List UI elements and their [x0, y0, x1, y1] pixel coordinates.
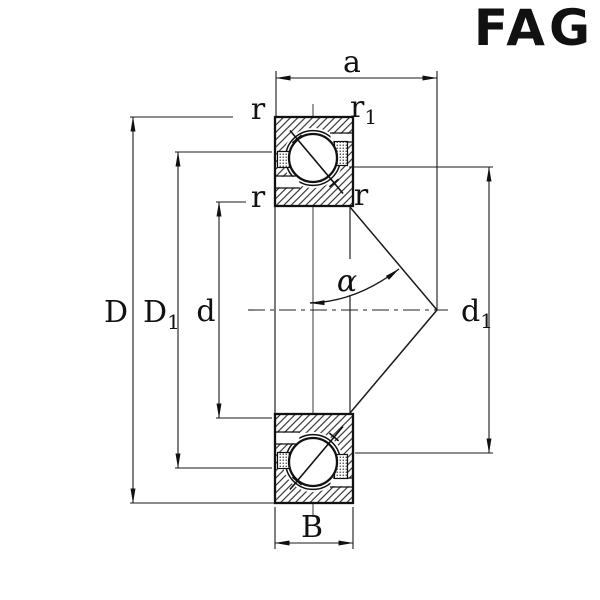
r-label-mid-right: r	[354, 178, 369, 213]
dim-D-label: D	[104, 295, 128, 330]
contact-line-top-to-apex	[350, 207, 437, 310]
top-left-gap	[276, 177, 300, 188]
bearing-technical-drawing: α a D D1 d d1	[0, 0, 600, 600]
contact-line-bottom-to-apex	[350, 310, 437, 413]
top-right-gap	[331, 134, 353, 142]
r-label-mid-left: r	[251, 180, 266, 215]
dim-B: B	[275, 507, 353, 549]
fag-logo: FAG	[474, 0, 594, 57]
dim-D1-label: D1	[143, 295, 180, 334]
bearing-drawing-page: α a D D1 d d1	[0, 0, 600, 600]
dim-d-label: d	[196, 294, 215, 329]
r-label-top-left: r	[251, 92, 266, 127]
top-cage-left	[278, 152, 290, 168]
bearing-bottom-section	[275, 414, 353, 503]
dim-d1: d1	[349, 167, 493, 453]
dim-B-label: B	[301, 510, 323, 545]
alpha-label: α	[337, 264, 357, 299]
r1-label-top-right: r1	[350, 90, 377, 129]
bottom-right-gap	[331, 479, 353, 487]
dim-d1-label: d1	[461, 294, 493, 333]
bearing-top-section	[275, 117, 353, 206]
dim-a-label: a	[343, 45, 361, 80]
contact-angle-dimension: α	[310, 264, 399, 303]
bottom-left-gap	[276, 433, 300, 444]
bottom-cage-left	[278, 453, 290, 469]
